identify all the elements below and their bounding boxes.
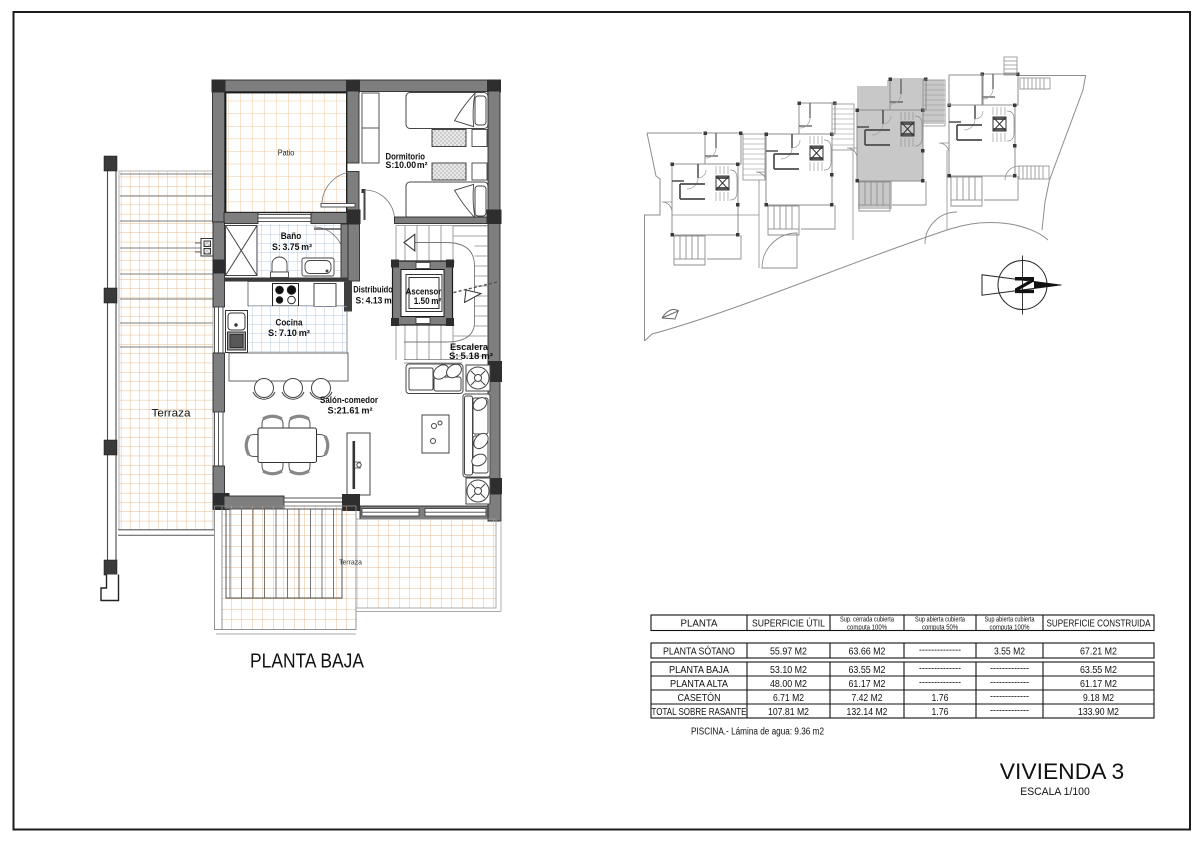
svg-text:53.10 M2: 53.10 M2 [770, 665, 807, 676]
svg-text:PLANTA: PLANTA [681, 619, 718, 630]
svg-text:S: 4.13 m²: S: 4.13 m² [356, 296, 395, 306]
svg-text:S:10.00 m²: S:10.00 m² [386, 160, 428, 170]
svg-text:--------------: -------------- [919, 678, 961, 689]
svg-text:N: N [1009, 275, 1040, 295]
svg-text:PLANTA BAJA: PLANTA BAJA [669, 665, 729, 676]
svg-text:--------------: -------------- [919, 664, 961, 675]
svg-text:Terraza: Terraza [152, 408, 192, 420]
svg-text:PLANTA BAJA: PLANTA BAJA [250, 651, 365, 673]
svg-text:S: 3.75 m²: S: 3.75 m² [272, 242, 312, 252]
svg-text:132.14 M2: 132.14 M2 [847, 707, 888, 718]
svg-text:3.55 M2: 3.55 M2 [994, 647, 1025, 658]
svg-text:1.50 m²: 1.50 m² [414, 296, 442, 306]
svg-text:67.21 M2: 67.21 M2 [1080, 647, 1117, 658]
svg-text:-------------: ------------- [990, 678, 1029, 689]
svg-text:PISCINA.- Lámina de agua: 9.36: PISCINA.- Lámina de agua: 9.36 m2 [691, 727, 824, 738]
svg-text:9.18 M2: 9.18 M2 [1083, 693, 1114, 704]
svg-text:-------------: ------------- [990, 664, 1029, 675]
svg-text:computa 50%: computa 50% [922, 625, 958, 632]
svg-text:computa 100%: computa 100% [990, 625, 1030, 632]
svg-text:133.90 M2: 133.90 M2 [1078, 707, 1119, 718]
svg-text:Salón-comedor: Salón-comedor [320, 395, 378, 405]
svg-text:107.81 M2: 107.81 M2 [768, 707, 809, 718]
svg-text:6.71 M2: 6.71 M2 [773, 693, 804, 704]
svg-text:TOTAL SOBRE RASANTE: TOTAL SOBRE RASANTE [652, 707, 747, 718]
svg-text:-------------: ------------- [990, 692, 1029, 703]
svg-text:1.76: 1.76 [932, 707, 949, 718]
svg-text:SUPERFICIE CONSTRUIDA: SUPERFICIE CONSTRUIDA [1047, 619, 1151, 630]
svg-text:7.42 M2: 7.42 M2 [852, 693, 883, 704]
svg-text:Sup abierta cubierta: Sup abierta cubierta [985, 617, 1035, 624]
svg-text:63.55 M2: 63.55 M2 [1080, 665, 1117, 676]
svg-text:55.97 M2: 55.97 M2 [770, 647, 807, 658]
svg-text:Terraza: Terraza [339, 558, 363, 567]
svg-text:Baño: Baño [281, 231, 302, 241]
svg-text:CASETÓN: CASETÓN [678, 691, 721, 704]
svg-text:S: 7.10 m²: S: 7.10 m² [268, 328, 310, 338]
svg-text:computa 100%: computa 100% [847, 625, 887, 632]
svg-text:-------------: ------------- [990, 706, 1029, 717]
svg-text:Patio: Patio [278, 149, 295, 158]
svg-text:VIVIENDA 3: VIVIENDA 3 [1000, 759, 1125, 784]
svg-text:S:21.61 m²: S:21.61 m² [328, 406, 373, 416]
svg-text:Distribuidor: Distribuidor [353, 285, 396, 295]
svg-text:48.00 M2: 48.00 M2 [770, 679, 807, 690]
svg-text:Sup abierta cubierta: Sup abierta cubierta [915, 617, 965, 624]
svg-text:61.17 M2: 61.17 M2 [849, 679, 886, 690]
svg-text:Cocina: Cocina [276, 318, 304, 328]
svg-text:Sup. cerrada cubierta: Sup. cerrada cubierta [840, 617, 894, 624]
svg-text:63.55 M2: 63.55 M2 [849, 665, 886, 676]
svg-text:SUPERFICIE ÚTIL: SUPERFICIE ÚTIL [752, 617, 825, 630]
svg-text:ESCALA 1/100: ESCALA 1/100 [1020, 786, 1090, 798]
svg-text:PLANTA ALTA: PLANTA ALTA [670, 679, 728, 690]
svg-text:PLANTA SÓTANO: PLANTA SÓTANO [663, 645, 735, 658]
svg-text:--------------: -------------- [919, 645, 961, 656]
svg-text:1.76: 1.76 [932, 693, 949, 704]
svg-text:63.66 M2: 63.66 M2 [849, 647, 886, 658]
svg-text:61.17 M2: 61.17 M2 [1080, 679, 1117, 690]
